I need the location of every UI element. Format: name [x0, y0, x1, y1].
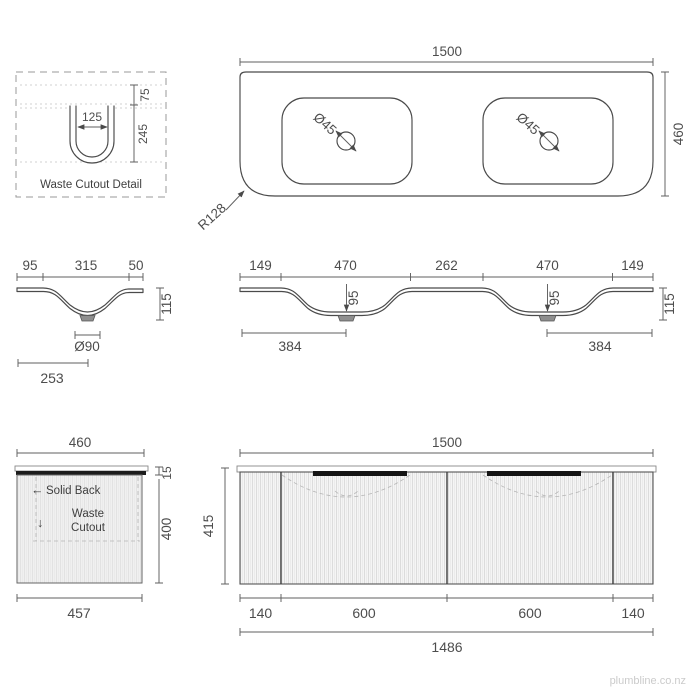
- front-dim-2: 262: [435, 258, 458, 273]
- waste-note-line2: Cutout: [71, 522, 106, 534]
- corner-radius-arrow: [226, 191, 244, 210]
- cab-side-width-dimline: [17, 449, 144, 457]
- side-profile-lower: [17, 292, 143, 316]
- front-drain-stub-left: [338, 316, 355, 322]
- waste-note-line1: Waste: [72, 508, 104, 520]
- side-drain-dia-label: Ø90: [74, 339, 100, 354]
- top-width-label: 1500: [432, 44, 462, 59]
- front-profile-lower: [240, 292, 653, 316]
- cab-side-width-label: 460: [69, 435, 92, 450]
- technical-drawing-page: 125 75 245 Waste Cutout Detail 1500 460 …: [0, 0, 700, 700]
- drain-centre-left-label: 384: [278, 338, 302, 354]
- side-height-label: 115: [159, 293, 174, 315]
- side-drain-dia-dimline: [75, 331, 100, 339]
- corner-radius-label: R128: [195, 200, 229, 233]
- cutout-depth-dimline: [130, 85, 138, 162]
- benchtop-top-view: 1500 460 Ø45 Ø45 R128: [195, 44, 686, 233]
- cab-front-height-label: 415: [201, 515, 216, 538]
- vanity-dimension-drawing: 125 75 245 Waste Cutout Detail 1500 460 …: [0, 0, 700, 700]
- bowl-depth-right-label: 95: [547, 290, 562, 305]
- arrow-down-icon: ↓: [37, 516, 43, 530]
- front-dim-0: 149: [249, 258, 272, 273]
- drain-centre-right-label: 384: [588, 338, 612, 354]
- cab-front-dim-1: 600: [352, 605, 376, 621]
- side-bowl-width-label: 315: [75, 258, 98, 273]
- cutout-top-offset-label: 75: [138, 88, 152, 102]
- cab-front-benchtop-edge: [237, 466, 656, 472]
- cab-front-handle-left: [313, 471, 407, 476]
- side-back-offset-label: 95: [22, 258, 37, 273]
- front-dim-1: 470: [334, 258, 357, 273]
- top-depth-dimline: [661, 72, 669, 196]
- cab-front-dim-0: 140: [249, 605, 273, 621]
- cab-front-height-dimline: [221, 468, 229, 584]
- arrow-left-icon: ←: [31, 483, 44, 497]
- basin-left-outline: [282, 98, 412, 184]
- front-section-top-dimline: [240, 273, 653, 281]
- side-drain-centre-dimline: [18, 359, 88, 367]
- cab-front-width-dimline: [240, 449, 653, 457]
- top-depth-label: 460: [671, 123, 686, 146]
- basin-right-outline: [483, 98, 613, 184]
- drain-centre-left-dimline: [242, 329, 346, 337]
- cab-front-width-label: 1500: [432, 435, 462, 450]
- detail-title: Waste Cutout Detail: [40, 179, 142, 191]
- cab-front-dim-3: 140: [621, 605, 645, 621]
- side-section-top-dimline: [17, 273, 143, 281]
- watermark: plumbline.co.nz: [610, 675, 686, 687]
- cab-side-height-label: 400: [159, 518, 174, 541]
- cab-front-dim-2: 600: [518, 605, 542, 621]
- side-drain-centre-label: 253: [40, 370, 64, 386]
- side-front-offset-label: 50: [128, 258, 143, 273]
- cab-side-top-thickness-label: 15: [160, 466, 174, 480]
- cab-front-carcass-label: 1486: [431, 639, 462, 655]
- cab-side-bottom-width-dimline: [17, 594, 142, 602]
- cutout-width-label: 125: [82, 110, 102, 124]
- front-drain-stub-right: [539, 316, 556, 322]
- drain-centre-right-dimline: [547, 329, 652, 337]
- front-dim-3: 470: [536, 258, 559, 273]
- cabinet-side-view: 460 ← Solid Back ↓ Waste Cutout 15 400 4…: [15, 435, 174, 621]
- side-drain-stub: [80, 316, 95, 322]
- basin-front-section: 149 470 262 470 149 95 95 115 384 384: [240, 258, 677, 354]
- bowl-depth-left-label: 95: [346, 290, 361, 305]
- cab-front-carcass-dimline: [240, 628, 653, 636]
- front-height-label: 115: [662, 293, 677, 315]
- cutout-depth-label: 245: [136, 124, 150, 144]
- cab-side-bottom-width-label: 457: [67, 605, 91, 621]
- cab-side-handle-recess: [16, 471, 146, 475]
- top-width-dimline: [240, 58, 653, 66]
- cab-front-bottom-dimline: [240, 594, 653, 602]
- cab-front-handle-right: [487, 471, 581, 476]
- waste-cutout-detail: 125 75 245 Waste Cutout Detail: [16, 72, 166, 197]
- cab-side-benchtop-edge: [15, 466, 148, 471]
- cabinet-front-view: 1500 415 140 600 600 140 1486: [201, 435, 656, 655]
- front-dim-4: 149: [621, 258, 644, 273]
- basin-side-section: 95 315 50 115 Ø90 253: [17, 258, 174, 386]
- solid-back-note: Solid Back: [46, 485, 101, 497]
